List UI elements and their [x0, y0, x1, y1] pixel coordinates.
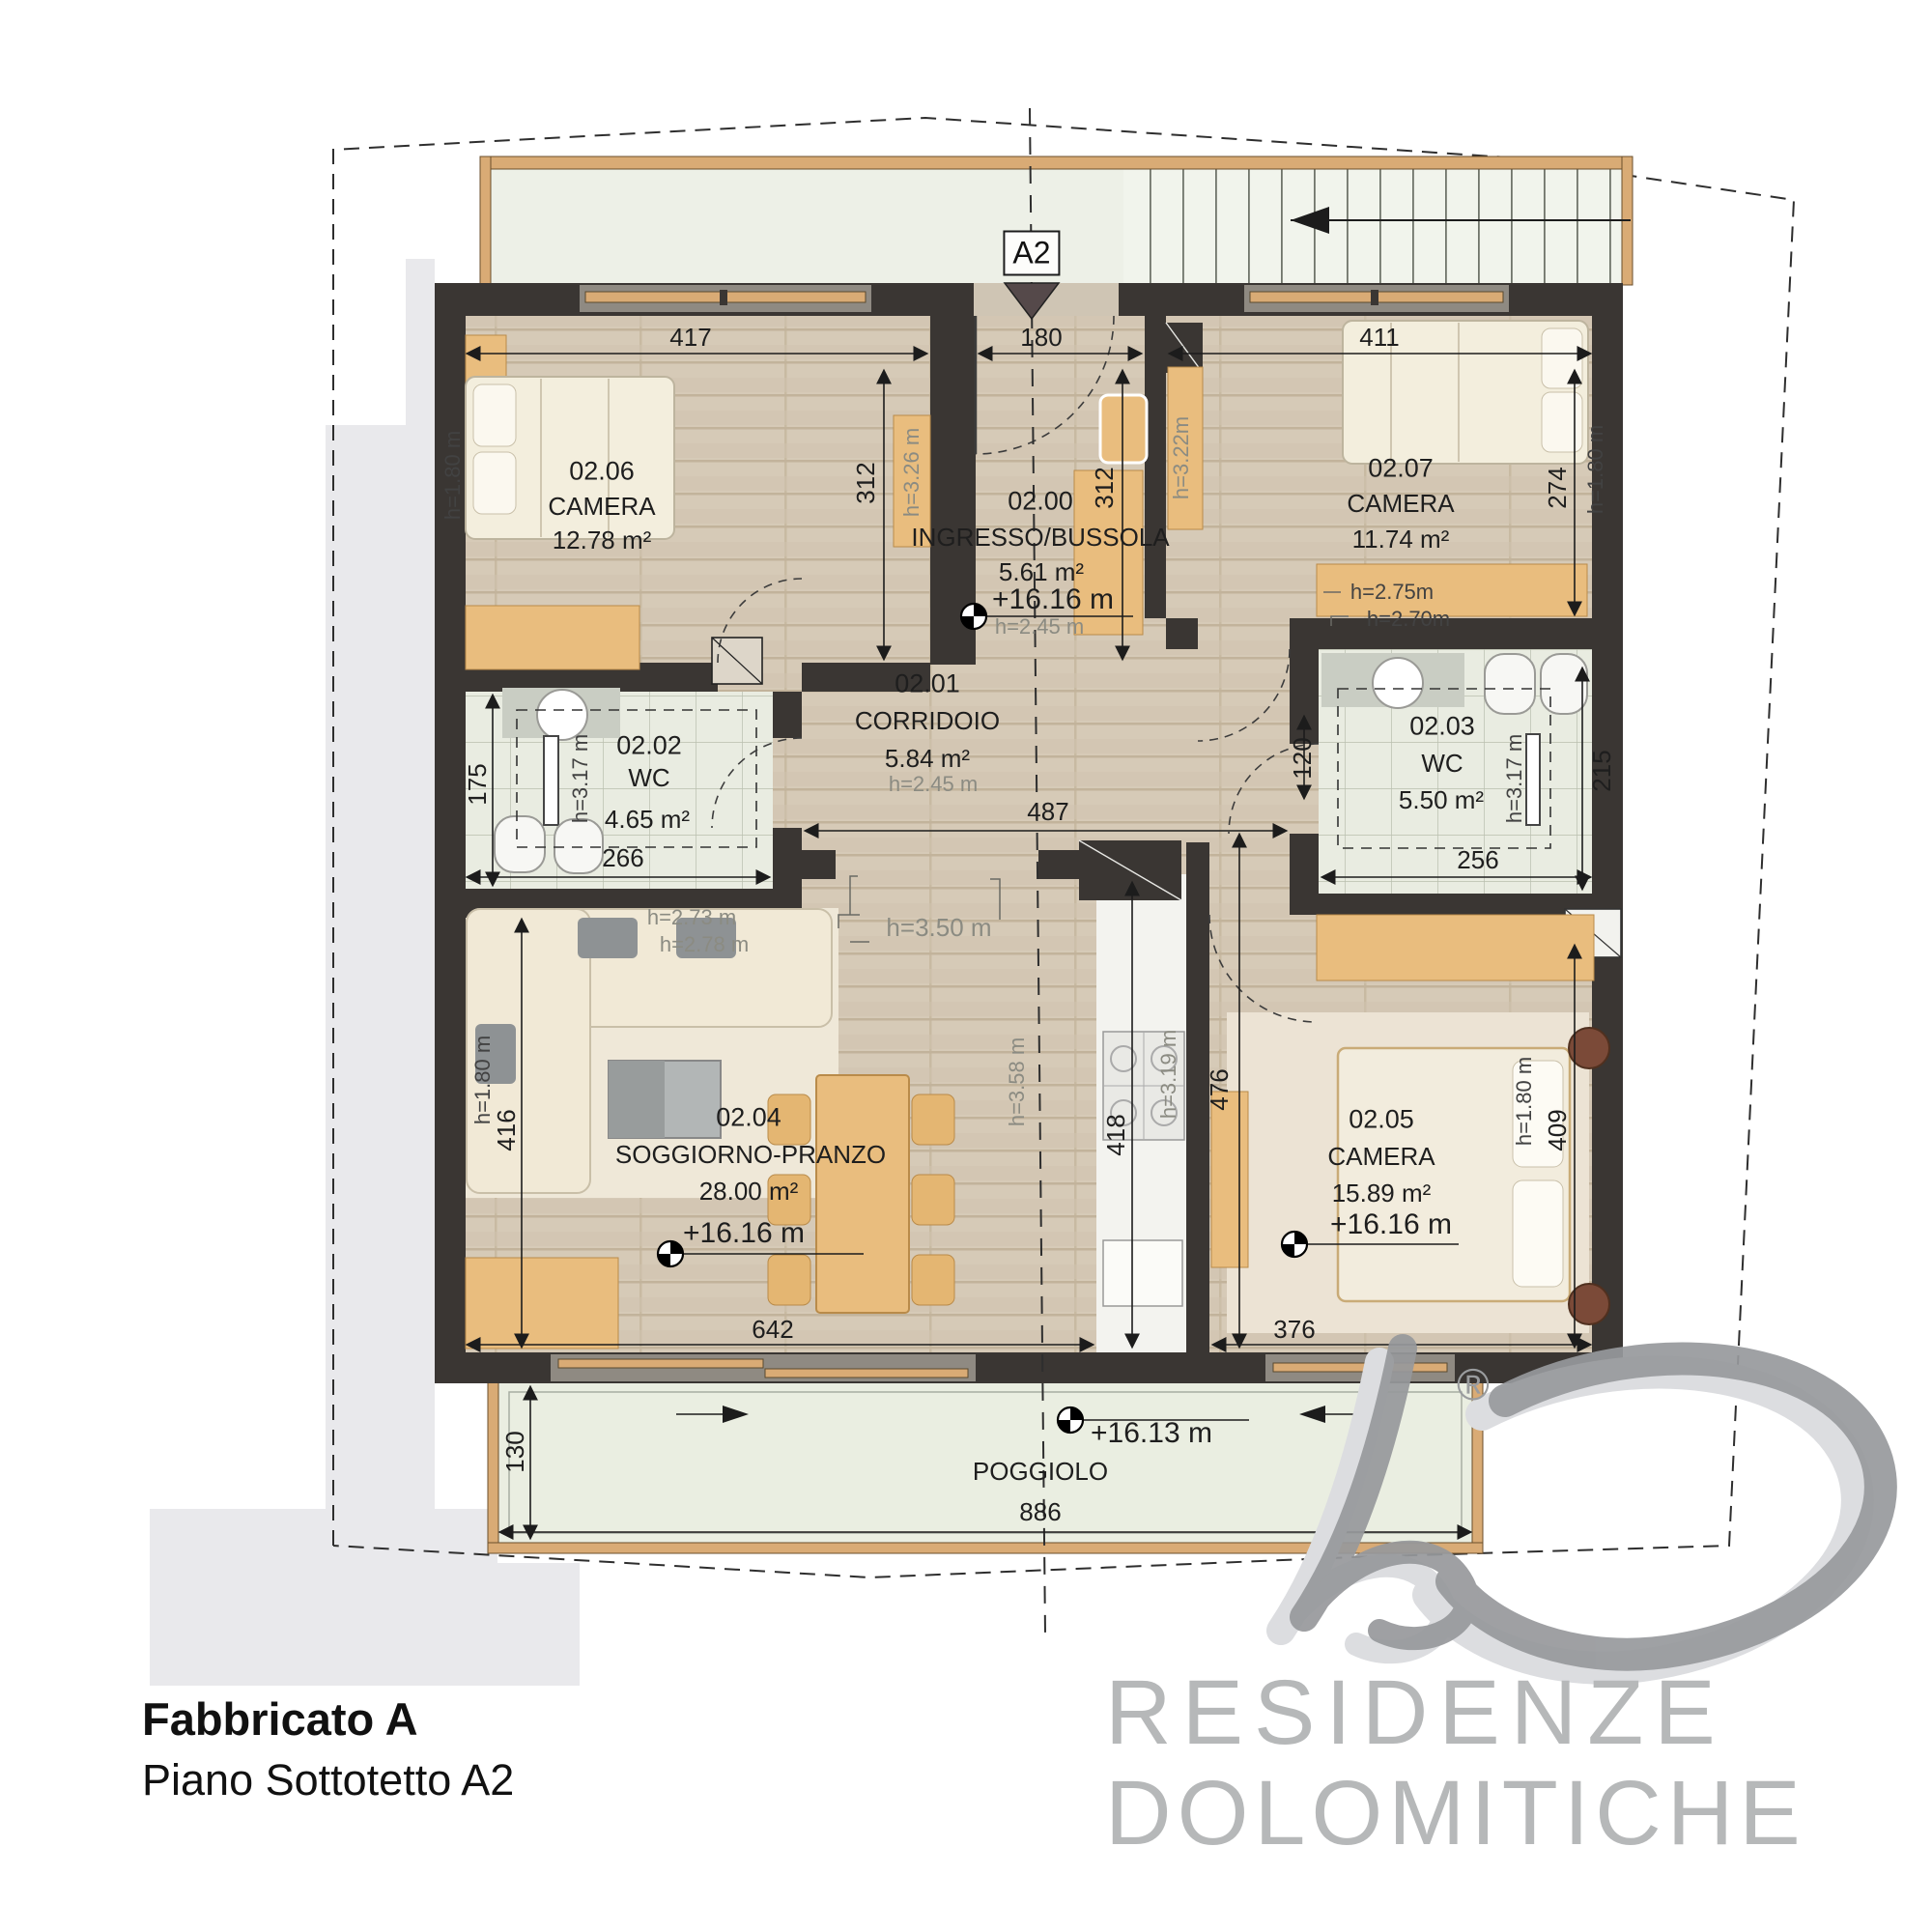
room-205-elevation: +16.16 m: [1330, 1210, 1452, 1239]
room-203-name: WC: [1421, 751, 1463, 776]
height-sofa-b: h=2.78 m: [660, 934, 749, 955]
dim-room207-width: 411: [1359, 325, 1399, 350]
room-202-name: WC: [628, 765, 669, 790]
desk-206: [466, 606, 639, 669]
logo-wordmark-line1: RESIDENZE: [1105, 1667, 1726, 1759]
balcony-name: POGGIOLO: [973, 1459, 1108, 1484]
dim-balcony-depth: 130: [502, 1431, 527, 1472]
dim-ingresso-width: 180: [1020, 325, 1062, 350]
window-bedroom206: [580, 285, 871, 312]
height-wardrobe207-b: h=2.70m: [1367, 609, 1450, 630]
height-wardrobe206: h=3.26 m: [901, 428, 923, 517]
height-wc02: h=3.17 m: [570, 734, 591, 823]
height-ridge: h=3.58 m: [1007, 1037, 1028, 1126]
height-ingresso: h=2.45 m: [995, 616, 1084, 638]
height-sofa-a: h=2.73 m: [647, 907, 736, 928]
height-living: h=1.80 m: [472, 1036, 494, 1124]
section-marker-a2: A2: [1003, 231, 1060, 276]
wardrobe-205-top: [1317, 915, 1594, 980]
floorplan-drawing: [0, 0, 1932, 1932]
room-207-number: 02.07: [1368, 456, 1434, 482]
dim-room207-depth: 274: [1545, 467, 1570, 508]
room-204-number: 02.04: [716, 1105, 781, 1131]
shaft-bedroom207: [1166, 323, 1203, 373]
room-207-area: 11.74 m²: [1352, 526, 1450, 552]
height-opening: h=3.50 m: [886, 915, 991, 940]
drawing-subtitle: Piano Sottotetto A2: [142, 1755, 514, 1805]
dim-ingresso-depth: 312: [1092, 467, 1117, 508]
dim-room206-depth: 312: [853, 462, 878, 503]
dim-room206-width: 417: [669, 325, 711, 350]
dim-wc03-depth: 215: [1589, 750, 1614, 791]
room-204-name: SOGGIORNO-PRANZO: [615, 1142, 886, 1167]
room-204-elevation: +16.16 m: [683, 1219, 805, 1248]
room-205-name: CAMERA: [1327, 1144, 1435, 1169]
dim-living-width: 642: [752, 1317, 793, 1342]
floorplan-page: 417 180 411 312 312 274 175 266 487 120 …: [0, 0, 1932, 1932]
room-203-area: 5.50 m²: [1399, 787, 1484, 812]
room-206-name: CAMERA: [548, 494, 655, 519]
dim-corridor-width: 487: [1027, 799, 1068, 824]
dim-wc03-offset: 120: [1290, 737, 1315, 779]
room-207-name: CAMERA: [1347, 491, 1454, 516]
dim-wc02-depth: 175: [465, 763, 490, 805]
radiator: [544, 736, 558, 825]
room-202-area: 4.65 m²: [605, 807, 690, 832]
room-203-number: 02.03: [1409, 714, 1475, 740]
height-bed206: h=1.80 m: [442, 431, 464, 520]
room-200-area: 5.61 m²: [999, 559, 1084, 584]
window-bedroom207: [1244, 285, 1509, 312]
title-block: Fabbricato A Piano Sottotetto A2: [142, 1692, 514, 1805]
radiator: [1526, 734, 1540, 825]
room-201-number: 02.01: [895, 671, 960, 697]
dim-wc03-width: 256: [1457, 847, 1498, 872]
room-200-elevation: +16.16 m: [992, 585, 1114, 614]
shaft-center: [1079, 840, 1181, 900]
dim-living-depth: 416: [494, 1109, 519, 1151]
height-wardrobe207-a: h=2.75m: [1350, 582, 1434, 603]
height-kitchen: h=3.19 m: [1158, 1030, 1179, 1119]
cabinet-living: [466, 1258, 618, 1349]
dim-passage-depth: 476: [1207, 1068, 1232, 1110]
wardrobe-205-side: [1211, 1092, 1248, 1267]
dim-balcony-width: 886: [1019, 1499, 1061, 1524]
logo-wordmark-line2: DOLOMITICHE: [1105, 1768, 1806, 1860]
room-201-area: 5.84 m²: [885, 746, 970, 771]
room-206-area: 12.78 m²: [553, 527, 652, 553]
height-bed207: h=1.80 m: [1585, 425, 1606, 514]
registered-trademark-icon: ®: [1457, 1358, 1490, 1410]
height-wardrobe200: h=3.22m: [1171, 416, 1192, 499]
room-202-number: 02.02: [616, 733, 682, 759]
room-200-name: INGRESSO/BUSSOLA: [911, 525, 1169, 550]
tv-unit: [609, 1061, 721, 1138]
dim-room205-depth: 409: [1545, 1109, 1570, 1151]
dim-kitchen-depth: 418: [1103, 1114, 1128, 1155]
room-206-number: 02.06: [569, 459, 635, 485]
stool-ingresso: [1100, 395, 1147, 463]
balcony-elevation: +16.13 m: [1091, 1419, 1212, 1448]
room-205-area: 15.89 m²: [1332, 1180, 1432, 1206]
room-201-name: CORRIDOIO: [855, 708, 1000, 733]
logo-monogram: [1281, 1349, 1881, 1668]
room-204-area: 28.00 m²: [699, 1179, 799, 1204]
dim-room205-width: 376: [1273, 1317, 1315, 1342]
room-205-number: 02.05: [1349, 1107, 1414, 1133]
height-wc03: h=3.17 m: [1504, 734, 1525, 823]
height-corridor: h=2.45 m: [889, 774, 978, 795]
height-bed205: h=1.80 m: [1514, 1057, 1535, 1146]
room-200-number: 02.00: [1008, 489, 1073, 515]
dim-wc02-width: 266: [602, 845, 643, 870]
drawing-title: Fabbricato A: [142, 1692, 514, 1746]
